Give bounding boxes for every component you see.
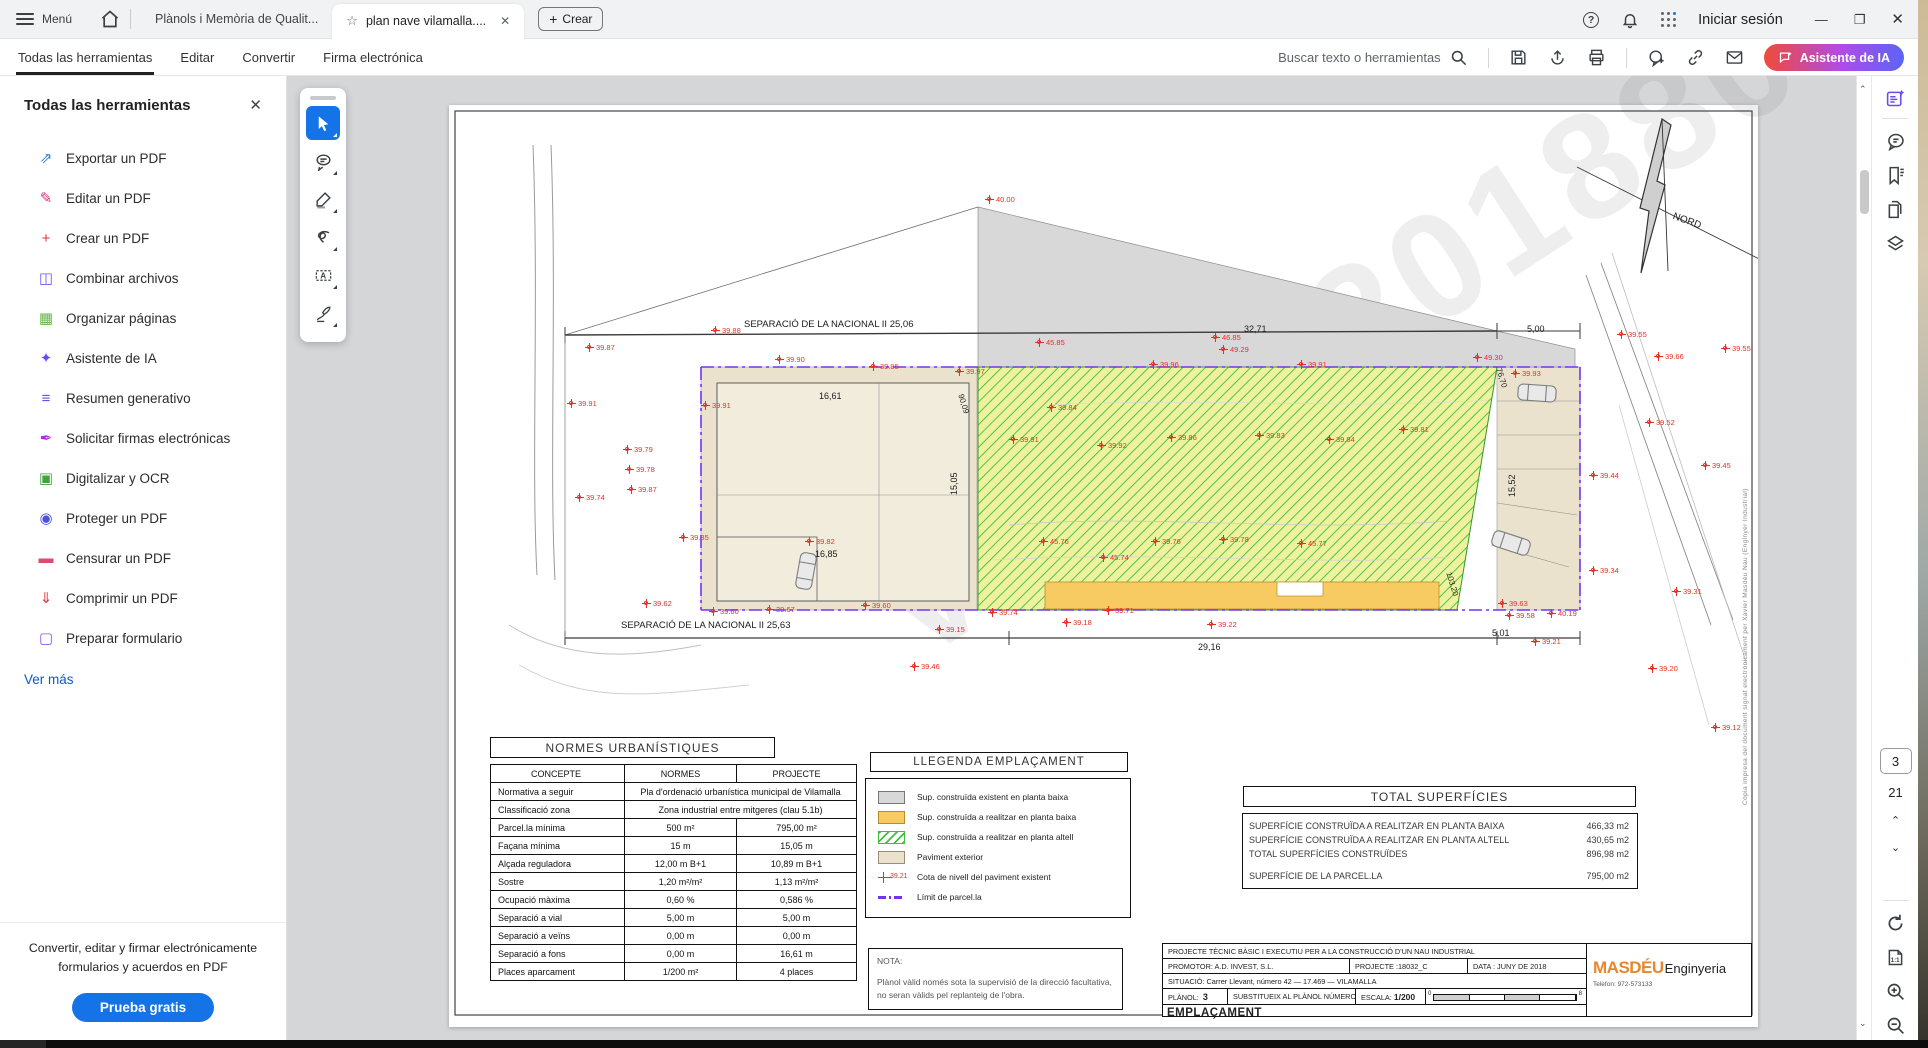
next-page-icon[interactable]: ⌄ xyxy=(1872,841,1919,854)
mail-icon[interactable] xyxy=(1725,48,1744,67)
text-box-tool-button[interactable]: A xyxy=(306,258,340,292)
cota-cross-icon xyxy=(1711,723,1720,732)
ai-chat-icon xyxy=(1778,50,1793,65)
sidebar-tool-item[interactable]: ≡ Resumen generativo xyxy=(0,378,286,418)
normes-table: CONCEPTE NORMES PROJECTE Normativa a seg… xyxy=(490,764,857,981)
level-cota: 39.85 xyxy=(679,533,709,542)
cota-cross-icon xyxy=(642,599,651,608)
pdf-page: VISAT 2018804 xyxy=(449,105,1758,1027)
cota-cross-icon xyxy=(1648,664,1657,673)
cota-cross-icon xyxy=(1701,461,1710,470)
legend-swatch: 39.21 xyxy=(878,872,905,883)
level-cota: 49.29 xyxy=(1219,345,1249,354)
document-canvas: A VISAT 2018804 xyxy=(287,76,1856,1040)
cota-cross-icon xyxy=(1297,539,1306,548)
cota-cross-icon xyxy=(711,326,720,335)
level-cota: 39.91 xyxy=(567,399,597,408)
fill-sign-tool-button[interactable] xyxy=(306,296,340,330)
tab-planols-memoria[interactable]: Plànols i Memòria de Qualit... xyxy=(141,0,332,38)
sidebar-tool-item[interactable]: ✎ Editar un PDF xyxy=(0,178,286,218)
link-icon[interactable] xyxy=(1686,48,1705,67)
star-icon[interactable]: ☆ xyxy=(346,13,358,29)
cota-cross-icon xyxy=(1047,403,1056,412)
sidebar-tool-item[interactable]: ✦ Asistente de IA xyxy=(0,338,286,378)
level-cota: 39.46 xyxy=(910,662,940,671)
level-cota: 39.78 xyxy=(1219,535,1249,544)
level-cota: 39.20 xyxy=(1648,664,1678,673)
level-cota: 39.96 xyxy=(1149,360,1179,369)
window-restore-button[interactable]: ❐ xyxy=(1854,13,1866,26)
cota-cross-icon xyxy=(955,367,964,376)
level-cota: 39.93 xyxy=(1511,369,1541,378)
tool-icon: ✒ xyxy=(36,428,56,448)
level-cota: 39.55 xyxy=(1617,330,1647,339)
titlebar: Menú Plànols i Memòria de Qualit... ☆ pl… xyxy=(0,0,1918,39)
home-icon[interactable] xyxy=(100,9,120,29)
legend-title: LLEGENDA EMPLAÇAMENT xyxy=(870,752,1128,772)
tool-icon: ▣ xyxy=(36,468,56,488)
level-cota: 39.87 xyxy=(627,485,657,494)
level-cota: 39.87 xyxy=(585,343,615,352)
totals-row: SUPERFÍCIE CONSTRUÏDA A REALITZAR EN PLA… xyxy=(1249,833,1629,847)
menu-convert[interactable]: Convertir xyxy=(240,39,297,75)
free-trial-button[interactable]: Prueba gratis xyxy=(72,993,214,1022)
share-upload-icon[interactable] xyxy=(1548,48,1567,67)
cota-cross-icon xyxy=(1009,435,1018,444)
cota-cross-icon xyxy=(1219,345,1228,354)
create-button[interactable]: +Crear xyxy=(538,7,603,31)
cota-cross-icon xyxy=(1167,433,1176,442)
level-cota: 45.77 xyxy=(1297,539,1327,548)
cota-cross-icon xyxy=(1211,333,1220,342)
cota-cross-icon xyxy=(585,343,594,352)
tool-icon: ≡ xyxy=(36,388,56,408)
save-icon[interactable] xyxy=(1509,48,1528,67)
bookmarks-panel-icon[interactable] xyxy=(1883,163,1907,187)
level-cota: 39.12 xyxy=(1711,723,1741,732)
level-cota: 39.34 xyxy=(1589,566,1619,575)
cota-cross-icon xyxy=(1255,431,1264,440)
normes-row: Separació a fons 0,00 m 16,61 m xyxy=(491,944,856,962)
cota-cross-icon xyxy=(910,662,919,671)
normes-row: Alçada reguladora 12,00 m B+1 10,89 m B+… xyxy=(491,854,856,872)
dimension-label: 15,05 xyxy=(949,472,959,495)
normes-row: Separació a vial 5,00 m 5,00 m xyxy=(491,908,856,926)
scroll-up-icon[interactable]: ⌃ xyxy=(1859,84,1867,95)
toolbar: Todas las herramientas Editar Convertir … xyxy=(0,39,1918,76)
sidebar-tool-item[interactable]: ✒ Solicitar firmas electrónicas xyxy=(0,418,286,458)
tab-plan-nave-vilamalla[interactable]: ☆ plan nave vilamalla.... ✕ xyxy=(332,4,524,39)
level-cota: 39.71 xyxy=(1104,606,1134,615)
menu-edit[interactable]: Editar xyxy=(178,39,216,75)
cota-cross-icon xyxy=(1654,352,1663,361)
level-cota: 39.97 xyxy=(955,367,985,376)
panel-close-icon[interactable]: ✕ xyxy=(249,96,262,114)
cota-cross-icon xyxy=(988,608,997,617)
cota-cross-icon xyxy=(1219,535,1228,544)
previous-page-icon[interactable]: ⌃ xyxy=(1872,814,1919,827)
sidebar-tool-item[interactable]: ▢ Preparar formulario xyxy=(0,618,286,658)
select-tool-button[interactable] xyxy=(306,106,340,140)
level-cota: 39.18 xyxy=(1062,618,1092,627)
draw-tool-button[interactable] xyxy=(306,220,340,254)
menu-all-tools[interactable]: Todas las herramientas xyxy=(16,39,154,75)
layers-panel-icon[interactable] xyxy=(1883,231,1907,255)
cota-cross-icon xyxy=(1035,338,1044,347)
dimension-label: SEPARACIÓ DE LA NACIONAL II 25,06 xyxy=(744,319,913,330)
generative-summary-panel-icon[interactable] xyxy=(1883,86,1907,110)
totals-box: SUPERFÍCIE CONSTRUÏDA A REALITZAR EN PLA… xyxy=(1242,813,1638,889)
level-cota: 39.81 xyxy=(1399,425,1429,434)
level-cota: 39.60 xyxy=(861,601,891,610)
sidebar-tool-item[interactable]: ▦ Organizar páginas xyxy=(0,298,286,338)
sidebar-tool-item[interactable]: ▬ Censurar un PDF xyxy=(0,538,286,578)
scale-bar: 0 8 xyxy=(1425,989,1586,1004)
dimension-label: 5,00 xyxy=(1527,324,1545,334)
add-comment-icon[interactable] xyxy=(1647,48,1666,67)
rail-divider xyxy=(1882,118,1908,119)
help-icon[interactable]: ? xyxy=(1583,12,1599,28)
level-cota: 39.91 xyxy=(1297,360,1327,369)
totals-row: SUPERFÍCIE CONSTRUÏDA A REALITZAR EN PLA… xyxy=(1249,819,1629,833)
cota-cross-icon xyxy=(1039,537,1048,546)
comments-panel-icon[interactable] xyxy=(1883,129,1907,153)
legend-item: 39.21 Cota de nivell del paviment existe… xyxy=(878,867,1130,887)
cota-cross-icon xyxy=(1721,344,1730,353)
legend-item: Sup. construïda a realitzar en planta ba… xyxy=(878,807,1130,827)
sidebar-tool-item[interactable]: + Crear un PDF xyxy=(0,218,286,258)
taskbar-sliver xyxy=(0,1040,1928,1048)
cota-cross-icon xyxy=(1473,353,1482,362)
toolbar-divider xyxy=(1488,48,1489,68)
dimension-label: 5,01 xyxy=(1492,628,1510,638)
cota-cross-icon xyxy=(1104,606,1113,615)
level-cota: 40.00 xyxy=(985,195,1015,204)
see-more-link[interactable]: Ver más xyxy=(24,672,74,687)
sidebar-tool-item[interactable]: ◉ Proteger un PDF xyxy=(0,498,286,538)
cota-cross-icon xyxy=(1151,537,1160,546)
level-cota: 39.84 xyxy=(1047,403,1077,412)
totals-title: TOTAL SUPERFÍCIES xyxy=(1243,786,1636,807)
level-cota: 39.55 xyxy=(1721,344,1751,353)
cota-cross-icon xyxy=(709,607,718,616)
normes-table-title: NORMES URBANÍSTIQUES xyxy=(490,737,775,758)
sidebar-tool-item[interactable]: ◫ Combinar archivos xyxy=(0,258,286,298)
normes-row: Façana mínima 15 m 15,05 m xyxy=(491,836,856,854)
current-page-input[interactable]: 3 xyxy=(1880,748,1912,774)
level-cota: 39.60 xyxy=(709,607,739,616)
search-input[interactable]: Buscar texto o herramientas xyxy=(1278,48,1468,67)
panel-title: Todas las herramientas xyxy=(24,97,190,114)
level-cota: 45.76 xyxy=(1039,537,1069,546)
level-cota: 39.74 xyxy=(575,493,605,502)
sheet-title: EMPLAÇAMENT xyxy=(1163,1005,1266,1021)
totals-parcel-row: SUPERFÍCIE DE LA PARCEL.LA795,00 m2 xyxy=(1249,869,1629,883)
window-minimize-button[interactable]: — xyxy=(1815,13,1828,26)
level-cota: 39.92 xyxy=(1097,441,1127,450)
tool-icon: ◉ xyxy=(36,508,56,528)
cota-cross-icon xyxy=(627,485,636,494)
level-cota: 39.91 xyxy=(701,401,731,410)
level-cota: 40.19 xyxy=(1547,609,1577,618)
scroll-down-icon[interactable]: ⌄ xyxy=(1859,1018,1867,1029)
legend-swatch xyxy=(878,851,905,864)
normes-merged-row: Classificació zona Zona industrial entre… xyxy=(491,800,856,818)
tool-icon: + xyxy=(36,228,56,248)
menu-label[interactable]: Menú xyxy=(42,12,72,26)
cota-cross-icon xyxy=(701,401,710,410)
cota-cross-icon xyxy=(1617,330,1626,339)
tab-close-icon[interactable]: ✕ xyxy=(500,14,510,28)
cota-cross-icon xyxy=(775,355,784,364)
sidebar-tool-item[interactable]: ⇓ Comprimir un PDF xyxy=(0,578,286,618)
cota-cross-icon xyxy=(567,399,576,408)
tool-icon: ▦ xyxy=(36,308,56,328)
level-cota: 49.30 xyxy=(1473,353,1503,362)
rotate-page-icon[interactable] xyxy=(1884,911,1908,935)
toolbar-divider-2 xyxy=(1626,48,1627,68)
level-cota: 39.52 xyxy=(1645,418,1675,427)
sidebar-tool-item[interactable]: ⇗ Exportar un PDF xyxy=(0,138,286,178)
level-cota: 39.21 xyxy=(1531,637,1561,646)
cota-cross-icon xyxy=(1099,553,1108,562)
cota-cross-icon xyxy=(623,445,632,454)
toolbar-drag-handle[interactable] xyxy=(310,96,336,100)
firm-block: MASDÉUEnginyeria Telèfon: 972-573133 xyxy=(1586,943,1752,1017)
cota-cross-icon xyxy=(1511,369,1520,378)
cota-cross-icon xyxy=(679,533,688,542)
cota-cross-icon xyxy=(1149,360,1158,369)
window-close-button[interactable]: ✕ xyxy=(1891,12,1904,27)
sidebar-tool-item[interactable]: ▣ Digitalizar y OCR xyxy=(0,458,286,498)
cota-cross-icon xyxy=(575,493,584,502)
tool-list: ⇗ Exportar un PDF ✎ Editar un PDF + Crea… xyxy=(0,138,286,658)
legend-item: Paviment exterior xyxy=(878,847,1130,867)
cota-cross-icon xyxy=(1325,435,1334,444)
level-cota: 39.95 xyxy=(869,362,899,371)
tool-icon: ⇗ xyxy=(36,148,56,168)
page-thumbnails-panel-icon[interactable] xyxy=(1883,197,1907,221)
dimension-label: 29,16 xyxy=(1198,642,1221,652)
quick-tools-toolbar: A xyxy=(300,88,346,342)
firm-logo: MASDÉU xyxy=(1593,958,1664,977)
level-cota: 39.67 xyxy=(765,605,795,614)
cota-cross-icon xyxy=(1589,566,1598,575)
vertical-scrollbar[interactable]: ⌃ ⌄ xyxy=(1856,76,1871,1040)
cota-cross-icon xyxy=(765,605,774,614)
cota-cross-icon xyxy=(1505,611,1514,620)
dimension-label: 16,61 xyxy=(819,391,842,401)
cota-cross-icon xyxy=(1672,587,1681,596)
legend-swatch xyxy=(878,811,905,824)
scrollbar-thumb[interactable] xyxy=(1860,170,1869,214)
normes-merged-row: Normativa a seguir Pla d'ordenació urban… xyxy=(491,782,856,800)
level-cota: 39.58 xyxy=(1505,611,1535,620)
comment-tool-button[interactable] xyxy=(306,144,340,178)
hamburger-menu-icon[interactable] xyxy=(16,13,34,25)
cota-cross-icon xyxy=(1297,360,1306,369)
cota-cross-icon xyxy=(935,625,944,634)
normes-row: Ocupació màxima 0,60 % 0,586 % xyxy=(491,890,856,908)
cota-cross-icon xyxy=(1097,441,1106,450)
level-cota: 39.74 xyxy=(988,608,1018,617)
nota-box: NOTA: Plànol vàlid només sota la supervi… xyxy=(868,948,1123,1010)
zoom-in-icon[interactable] xyxy=(1884,979,1908,1003)
desktop-wallpaper-sliver xyxy=(1918,0,1928,1048)
tool-icon: ✎ xyxy=(36,188,56,208)
sign-in-button[interactable]: Iniciar sesión xyxy=(1698,12,1783,28)
highlight-tool-button[interactable] xyxy=(306,182,340,216)
title-block: PROJECTE TÈCNIC BÀSIC I EXECUTIU PER A L… xyxy=(1162,943,1586,1017)
totals-row: TOTAL SUPERFÍCIES CONSTRUÏDES896,98 m2 xyxy=(1249,847,1629,861)
menu-esign[interactable]: Firma electrónica xyxy=(321,39,425,75)
north-arrow xyxy=(1577,119,1758,273)
tool-icon: ⇓ xyxy=(36,588,56,608)
cota-cross-icon xyxy=(1645,418,1654,427)
dimension-label: SEPARACIÓ DE LA NACIONAL II 25,63 xyxy=(621,620,790,631)
tool-icon: ▬ xyxy=(36,548,56,568)
cota-cross-icon xyxy=(1207,620,1216,629)
level-cota: 39.66 xyxy=(1654,352,1684,361)
cota-cross-icon xyxy=(1399,425,1408,434)
zoom-out-icon[interactable] xyxy=(1884,1013,1908,1037)
search-icon xyxy=(1449,48,1468,67)
legend-item: Sup. construïda a realitzar en planta al… xyxy=(878,827,1130,847)
legend-item: Límit de parcel.la xyxy=(878,887,1130,907)
level-cota: 39.88 xyxy=(711,326,741,335)
normes-row: Sostre 1,20 m²/m² 1,13 m²/m² xyxy=(491,872,856,890)
legend-box: Sup. construïda existent en planta baixa… xyxy=(865,778,1131,918)
level-cota: 39.31 xyxy=(1672,587,1702,596)
level-cota: 39.79 xyxy=(623,445,653,454)
cota-cross-icon xyxy=(869,362,878,371)
legend-swatch xyxy=(878,831,905,844)
level-cota: 39.91 xyxy=(1009,435,1039,444)
cota-cross-icon xyxy=(1547,609,1556,618)
rail-divider-2 xyxy=(1883,900,1909,901)
level-cota: 39.45 xyxy=(1701,461,1731,470)
promo-text: Convertir, editar y firmar electrónicame… xyxy=(0,939,286,977)
level-cota: 39.44 xyxy=(1589,471,1619,480)
cota-cross-icon xyxy=(625,465,634,474)
fit-page-icon[interactable]: 1:1 xyxy=(1884,945,1908,969)
legend-swatch xyxy=(878,896,905,899)
tool-icon: ✦ xyxy=(36,348,56,368)
signature-side-note: Còpia impresa del document signat electr… xyxy=(1742,488,1749,805)
cota-cross-icon xyxy=(1498,599,1507,608)
acrobat-window: Menú Plànols i Memòria de Qualit... ☆ pl… xyxy=(0,0,1928,1048)
notifications-bell-icon[interactable] xyxy=(1621,11,1639,29)
svg-text:1:1: 1:1 xyxy=(1891,956,1900,963)
print-icon[interactable] xyxy=(1587,48,1606,67)
level-cota: 39.15 xyxy=(935,625,965,634)
cota-cross-icon xyxy=(1531,637,1540,646)
level-cota: 39.78 xyxy=(625,465,655,474)
total-pages-label: 21 xyxy=(1872,785,1919,800)
dimension-label: 32,71 xyxy=(1244,324,1267,334)
level-cota: 39.22 xyxy=(1207,620,1237,629)
cota-cross-icon xyxy=(805,537,814,546)
level-cota: 39.63 xyxy=(1498,599,1528,608)
titlebar-divider xyxy=(130,9,131,29)
level-cota: 39.82 xyxy=(805,537,835,546)
apps-grid-icon[interactable] xyxy=(1661,12,1676,27)
level-cota: 45.74 xyxy=(1099,553,1129,562)
level-cota: 45.85 xyxy=(1035,338,1065,347)
normes-row: Separació a veïns 0,00 m 0,00 m xyxy=(491,926,856,944)
right-panel-rail: 3 21 ⌃ ⌄ 1:1 xyxy=(1871,76,1918,1040)
cota-cross-icon xyxy=(861,601,870,610)
page-navigation: 3 21 ⌃ ⌄ xyxy=(1872,748,1919,854)
normes-header-row: CONCEPTE NORMES PROJECTE xyxy=(491,765,856,782)
cota-cross-icon xyxy=(1589,471,1598,480)
dimension-label: 16,85 xyxy=(815,549,838,559)
normes-row: Places aparcament 1/200 m² 4 places xyxy=(491,962,856,980)
trial-promo: Convertir, editar y firmar electrónicame… xyxy=(0,922,286,1032)
level-cota: 46.85 xyxy=(1211,333,1241,342)
legend-swatch xyxy=(878,791,905,804)
level-cota: 39.84 xyxy=(1325,435,1355,444)
level-cota: 39.90 xyxy=(775,355,805,364)
normes-row: Parcel.la mínima 500 m² 795,00 m² xyxy=(491,818,856,836)
level-cota: 39.76 xyxy=(1151,537,1181,546)
ai-assistant-button[interactable]: Asistente de IA xyxy=(1764,44,1904,71)
all-tools-panel: Todas las herramientas ✕ ⇗ Exportar un P… xyxy=(0,76,287,1040)
svg-text:A: A xyxy=(320,271,326,280)
dimension-label: 15,52 xyxy=(1507,474,1517,497)
cota-cross-icon xyxy=(985,195,994,204)
level-cota: 39.62 xyxy=(642,599,672,608)
tool-icon: ▢ xyxy=(36,628,56,648)
cota-cross-icon xyxy=(1062,618,1071,627)
level-cota: 39.83 xyxy=(1255,431,1285,440)
level-cota: 39.86 xyxy=(1167,433,1197,442)
legend-item: Sup. construïda existent en planta baixa xyxy=(878,787,1130,807)
tool-icon: ◫ xyxy=(36,268,56,288)
